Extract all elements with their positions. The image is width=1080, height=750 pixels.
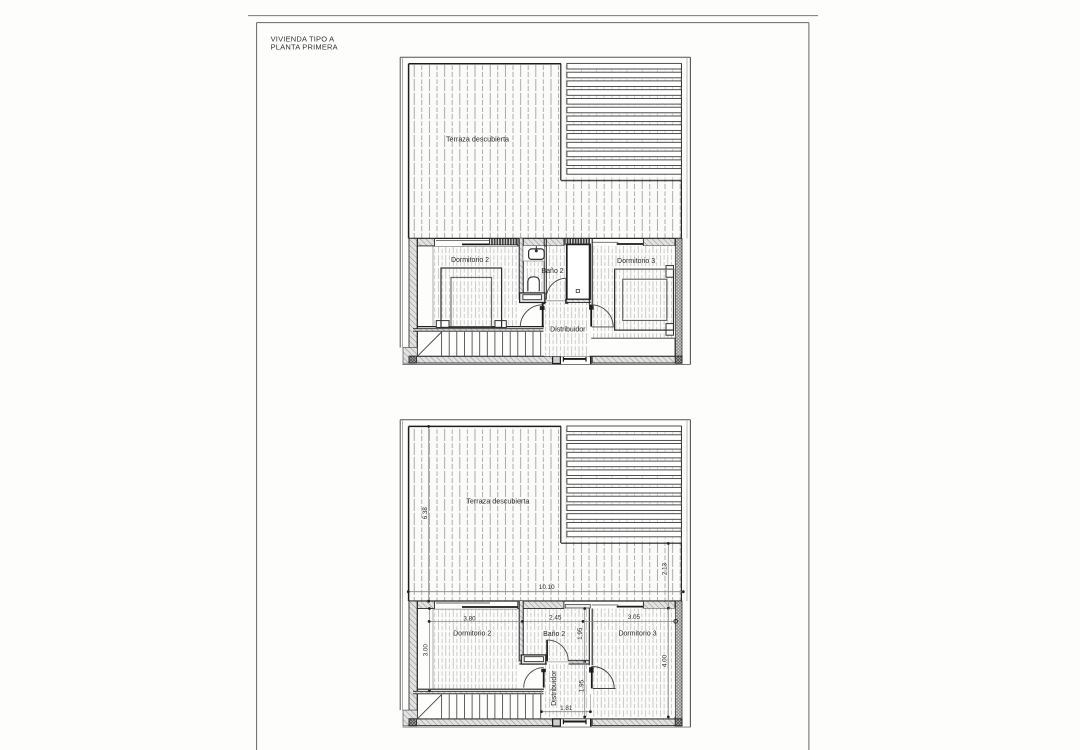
svg-text:1.95: 1.95 bbox=[578, 679, 585, 692]
svg-text:Baño 2: Baño 2 bbox=[542, 268, 564, 275]
svg-text:Distribuidor: Distribuidor bbox=[551, 670, 558, 706]
svg-text:6.38: 6.38 bbox=[422, 507, 429, 520]
svg-text:Terraza descubierta: Terraza descubierta bbox=[446, 134, 509, 143]
svg-text:4.00: 4.00 bbox=[661, 654, 668, 667]
svg-text:Dormitorio 3: Dormitorio 3 bbox=[617, 258, 655, 265]
svg-text:Baño 2: Baño 2 bbox=[543, 631, 565, 638]
svg-text:1.95: 1.95 bbox=[577, 627, 584, 640]
svg-text:Terraza descubierta: Terraza descubierta bbox=[466, 497, 529, 506]
svg-text:1.81: 1.81 bbox=[560, 705, 573, 712]
svg-text:3.80: 3.80 bbox=[463, 615, 476, 622]
svg-text:Distribuidor: Distribuidor bbox=[550, 327, 586, 334]
svg-text:10.10: 10.10 bbox=[539, 584, 555, 591]
svg-text:2.45: 2.45 bbox=[549, 615, 562, 622]
svg-text:3.05: 3.05 bbox=[628, 614, 641, 621]
svg-text:PLANTA PRIMERA: PLANTA PRIMERA bbox=[271, 42, 338, 51]
svg-text:2.13: 2.13 bbox=[662, 562, 669, 575]
svg-text:Dormitorio 2: Dormitorio 2 bbox=[453, 630, 491, 637]
svg-text:3.00: 3.00 bbox=[423, 644, 430, 657]
svg-text:Dormitorio 3: Dormitorio 3 bbox=[618, 630, 656, 637]
svg-text:Dormitorio 2: Dormitorio 2 bbox=[451, 257, 489, 264]
